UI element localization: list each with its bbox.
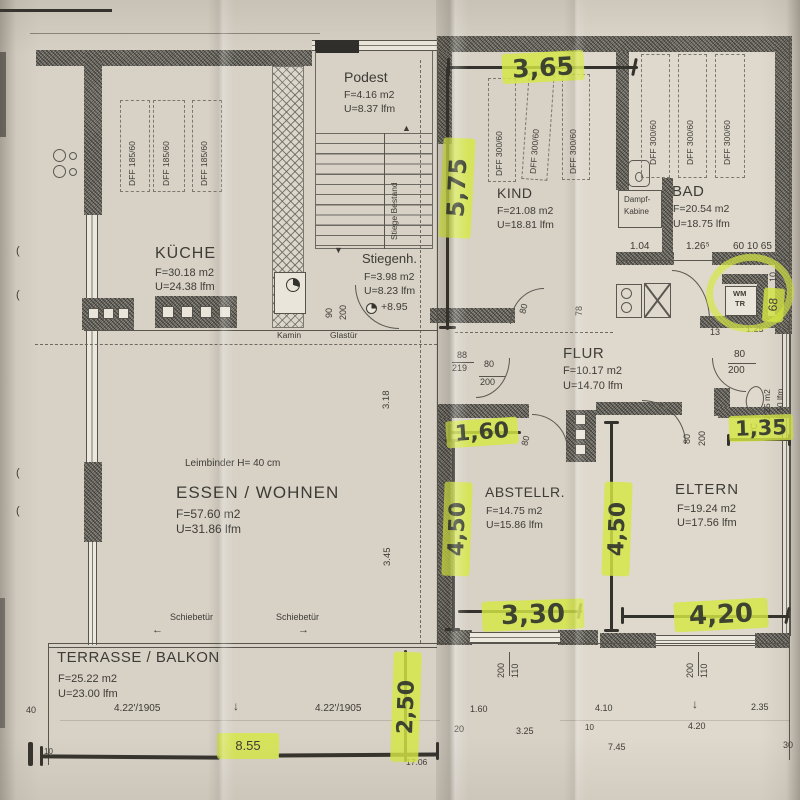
dim-label: 4.22'/1905 bbox=[315, 704, 361, 715]
wall bbox=[430, 308, 515, 323]
hand-tick bbox=[439, 326, 456, 329]
room-perim-flur: U=14.70 lfm bbox=[563, 381, 623, 393]
highlight-4-50-right-text: 4,50 bbox=[604, 501, 631, 556]
kamin-damper-icon bbox=[286, 278, 300, 292]
dim-label: 80 bbox=[484, 360, 494, 369]
dim-label: 10 bbox=[44, 748, 53, 756]
label-schiebetuer: Schiebetür bbox=[170, 613, 213, 622]
room-perim-kueche: U=24.38 lfm bbox=[155, 282, 215, 294]
room-area-bad: F=20.54 m2 bbox=[673, 204, 729, 215]
compass-quarter-icon bbox=[366, 303, 377, 314]
highlight-1-60-text: 1,60 bbox=[454, 418, 510, 447]
scan-top-line bbox=[0, 9, 112, 12]
faint-line bbox=[60, 720, 440, 721]
island-hole bbox=[200, 306, 212, 318]
fraction-line bbox=[728, 363, 756, 364]
dim-label: 10 bbox=[585, 724, 594, 732]
island-hole bbox=[103, 308, 114, 319]
sliding-door-track bbox=[48, 647, 437, 648]
wall bbox=[600, 633, 656, 648]
wall bbox=[84, 462, 102, 542]
hand-tick bbox=[445, 628, 460, 631]
shower-x-box bbox=[644, 283, 671, 318]
sink-bowl bbox=[621, 302, 632, 313]
skylight-label: DFF 185/60 bbox=[162, 106, 171, 186]
highlight-3-65-text: 3,65 bbox=[511, 51, 574, 83]
highlight-1-35-text: 1,35 bbox=[735, 415, 788, 441]
arrow-right-icon: → bbox=[298, 625, 309, 637]
dim-label: 80 bbox=[683, 422, 692, 444]
dashed-line bbox=[455, 332, 613, 333]
pillar-hole bbox=[575, 429, 586, 440]
dim-label: 4.22'/1905 bbox=[114, 704, 160, 715]
island-hole bbox=[162, 306, 174, 318]
highlight-4-50-left-text: 4,50 bbox=[444, 501, 471, 556]
paper-smudge-2 bbox=[0, 598, 5, 728]
dim-label: 60 10 65 bbox=[733, 242, 772, 253]
stairs-run-label: Stiege Bestand bbox=[390, 145, 399, 240]
door-arc-bad bbox=[672, 270, 710, 320]
room-area-abstellraum: F=14.75 m2 bbox=[486, 506, 542, 517]
floorplan-scan: ▲ ▼ Stiege Bestand ( ( ( ( bbox=[0, 0, 800, 800]
dim-label: 4.10 bbox=[595, 704, 613, 713]
window-mark-icon: ( bbox=[16, 290, 20, 302]
wall bbox=[755, 633, 790, 648]
room-label-eltern: ELTERN bbox=[675, 482, 739, 498]
cooktop-burner bbox=[69, 168, 77, 176]
window-band bbox=[86, 215, 98, 462]
paper-smudge-1 bbox=[0, 52, 6, 137]
room-area-stiegenhaus: F=3.98 m2 bbox=[364, 272, 415, 283]
highlight-3-30-text: 3,30 bbox=[500, 599, 565, 631]
room-perim-podest: U=8.37 lfm bbox=[344, 104, 395, 115]
dim-label: 200 bbox=[497, 650, 506, 678]
dim-label: 3.25 bbox=[516, 727, 534, 736]
room-label-kueche: KÜCHE bbox=[155, 246, 216, 263]
island-hole bbox=[219, 306, 231, 318]
stair-up-icon: ▲ bbox=[402, 124, 411, 133]
room-area-kueche: F=30.18 m2 bbox=[155, 268, 214, 280]
dim-label: 200 bbox=[728, 366, 745, 377]
room-area-terrasse: F=25.22 m2 bbox=[58, 674, 117, 686]
island-hole bbox=[88, 308, 99, 319]
dim-label: 20 bbox=[454, 725, 464, 734]
dashed-line bbox=[35, 344, 437, 345]
highlight-2-50-text: 2,50 bbox=[393, 679, 420, 734]
room-label-stiegenhaus: Stiegenh. bbox=[362, 252, 417, 266]
dim-label: 30 bbox=[783, 741, 793, 750]
hand-tick bbox=[40, 746, 43, 766]
dim-label: 200 bbox=[686, 650, 695, 678]
line bbox=[437, 52, 438, 643]
hand-tick bbox=[604, 629, 619, 632]
arrow-left-icon: ← bbox=[152, 625, 163, 637]
room-label-terrasse: TERRASSE / BALKON bbox=[57, 650, 220, 666]
highlight-3-65: 3,65 bbox=[501, 50, 584, 84]
room-area-kind: F=21.08 m2 bbox=[497, 206, 553, 217]
room-area-eltern: F=19.24 m2 bbox=[677, 504, 736, 516]
skylight-label: DFF 185/60 bbox=[128, 106, 137, 186]
dim-label: 1.26⁵ bbox=[686, 242, 710, 253]
dim-label: 7.45 bbox=[608, 743, 626, 752]
highlight-8-55-text: 8.55 bbox=[235, 739, 260, 753]
corner-mark bbox=[28, 742, 33, 766]
label-glastuer: Glastür bbox=[330, 331, 357, 340]
dim-label: 219 bbox=[452, 364, 467, 373]
wall bbox=[437, 36, 777, 52]
room-label-bad: BAD bbox=[672, 184, 704, 200]
highlight-1-60: 1,60 bbox=[445, 417, 519, 449]
stairs bbox=[315, 133, 433, 249]
cooktop-burner bbox=[53, 149, 66, 162]
pillar-hole bbox=[575, 414, 586, 425]
arrow-down-icon: ↓ bbox=[233, 700, 239, 713]
highlight-5-75-text: 5,75 bbox=[441, 158, 472, 219]
skylight-label: DFF 300/60 bbox=[649, 70, 658, 165]
wall bbox=[36, 50, 312, 66]
window-mark-icon: ( bbox=[16, 246, 20, 258]
room-perim-terrasse: U=23.00 lfm bbox=[58, 689, 118, 701]
highlight-8-55: 8.55 bbox=[217, 733, 279, 759]
wall bbox=[616, 252, 674, 265]
island-hole bbox=[181, 306, 193, 318]
window-mark-icon: ( bbox=[16, 506, 20, 518]
dim-label: 3.45 bbox=[383, 538, 393, 566]
highlight-1-35: 1,35 bbox=[729, 414, 794, 442]
faint-line bbox=[560, 720, 790, 721]
dim-label: 40 bbox=[26, 706, 36, 715]
room-area-flur: F=10.17 m2 bbox=[563, 366, 622, 378]
dim-label: 90 bbox=[325, 296, 334, 318]
dim-label: 200 bbox=[480, 378, 495, 387]
hand-tick bbox=[436, 742, 439, 760]
hand-dim-line bbox=[42, 754, 220, 759]
dim-label: 1.04 bbox=[630, 242, 649, 253]
room-perim-kind: U=18.81 lfm bbox=[497, 220, 554, 231]
room-perim-abstellraum: U=15.86 lfm bbox=[486, 520, 543, 531]
stair-down-icon: ▼ bbox=[334, 246, 343, 255]
room-area-podest: F=4.16 m2 bbox=[344, 90, 395, 101]
highlight-4-20-text: 4,20 bbox=[688, 598, 754, 631]
label-leimbinder: Leimbinder H= 40 cm bbox=[185, 459, 280, 470]
hand-tick bbox=[621, 607, 624, 624]
highlight-4-20: 4,20 bbox=[673, 598, 768, 633]
dim-label: 1.60 bbox=[470, 705, 488, 714]
window-band bbox=[88, 542, 97, 645]
room-label-kind: KIND bbox=[497, 186, 532, 201]
dim-label: 88 bbox=[457, 351, 467, 360]
highlight-5-75: 5,75 bbox=[438, 137, 475, 239]
dim-label: 3.18 bbox=[382, 381, 392, 409]
room-label-flur: FLUR bbox=[563, 346, 604, 362]
wall bbox=[84, 50, 102, 215]
room-area-essen: F=57.60 m2 bbox=[176, 508, 240, 521]
dim-label: 110 bbox=[511, 650, 520, 678]
arrow-down-icon: ↓ bbox=[692, 698, 698, 711]
dampfkabine-box bbox=[618, 190, 662, 228]
skylight-label: DFF 300/60 bbox=[495, 84, 504, 176]
dim-label: 78 bbox=[575, 292, 584, 316]
pencil-top-line bbox=[30, 33, 320, 34]
label-kamin: Kamin bbox=[277, 331, 301, 340]
label-schiebetuer: Schiebetür bbox=[276, 613, 319, 622]
room-perim-bad: U=18.75 lfm bbox=[673, 219, 730, 230]
dim-label: 13 bbox=[710, 328, 720, 337]
skylight-label: DFF 185/60 bbox=[200, 106, 209, 186]
highlight-4-50-right: 4,50 bbox=[601, 482, 632, 577]
room-perim-essen: U=31.86 lfm bbox=[176, 523, 241, 536]
cooktop-burner bbox=[69, 152, 77, 160]
dim-label: 4.20 bbox=[688, 722, 706, 731]
highlight-3-30: 3,30 bbox=[482, 598, 585, 632]
dim-label: 110 bbox=[700, 650, 709, 678]
room-label-podest: Podest bbox=[344, 70, 388, 85]
room-label-essen: ESSEN / WOHNEN bbox=[176, 484, 339, 502]
dim-label: 200 bbox=[698, 420, 707, 446]
skylight-label: DFF 300/60 bbox=[686, 70, 695, 165]
pillar-hole bbox=[575, 444, 586, 455]
line bbox=[84, 330, 437, 331]
line bbox=[789, 36, 790, 760]
cooktop-burner bbox=[53, 165, 66, 178]
highlight-4-50-left: 4,50 bbox=[441, 482, 472, 577]
room-label-abstellraum: ABSTELLR. bbox=[485, 485, 565, 500]
window-band bbox=[470, 632, 560, 643]
dashed-line bbox=[420, 60, 421, 643]
sliding-door-track bbox=[48, 643, 790, 644]
stairs-divider bbox=[384, 133, 385, 249]
island-hole bbox=[118, 308, 129, 319]
dim-label: 2.35 bbox=[751, 703, 769, 712]
highlight-2-50: 2,50 bbox=[390, 652, 422, 763]
level-label: +8.95 bbox=[381, 302, 408, 313]
skylight-label: DFF 300/60 bbox=[569, 82, 578, 174]
window-mark-icon: ( bbox=[16, 468, 20, 480]
room-perim-stiegenhaus: U=8.23 lfm bbox=[364, 286, 415, 297]
room-perim-eltern: U=17.56 lfm bbox=[677, 518, 737, 530]
door-arc-abstellraum bbox=[532, 414, 568, 450]
sink-bowl bbox=[621, 288, 632, 299]
hand-tick bbox=[604, 421, 619, 424]
skylight-label: DFF 300/60 bbox=[723, 70, 732, 165]
dim-label: 80 bbox=[734, 350, 745, 361]
dim-label: 200 bbox=[339, 294, 348, 320]
